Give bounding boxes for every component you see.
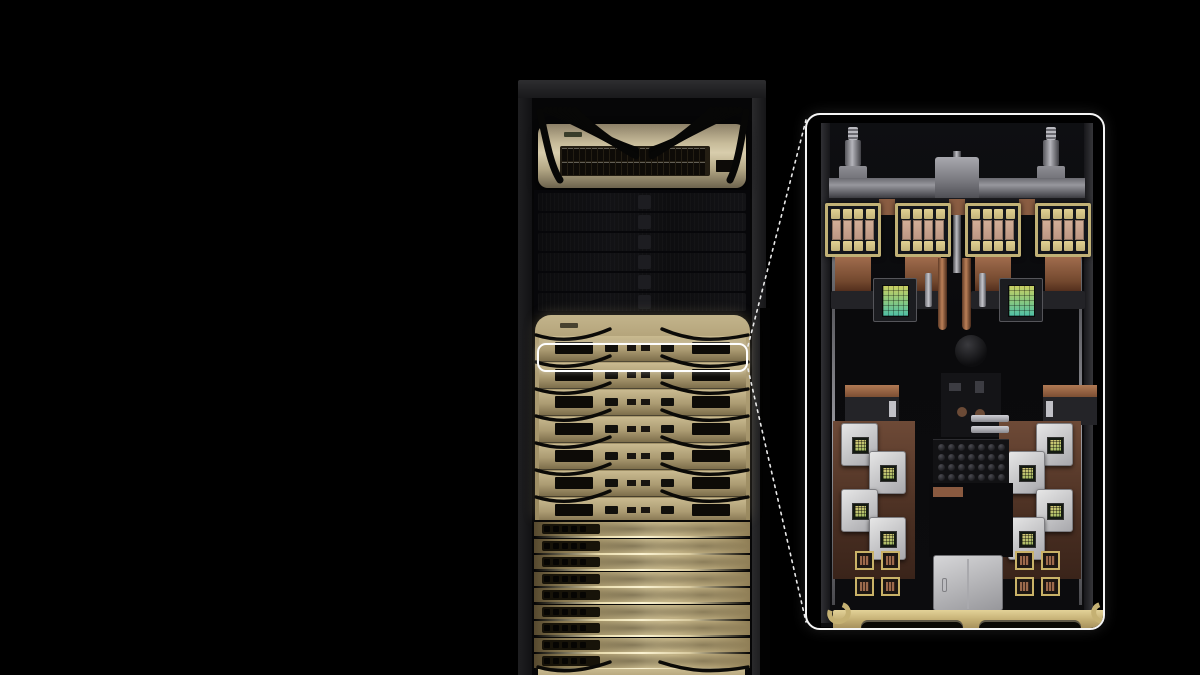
tray-connector (641, 507, 650, 513)
hbm-stack (1006, 241, 1015, 251)
blade-port-cluster (542, 623, 600, 633)
blade-port (544, 625, 550, 631)
tray-io-slot (555, 504, 593, 516)
switch-port (586, 162, 591, 175)
blade-port (562, 625, 568, 631)
blade-port-cluster (542, 640, 600, 650)
copper-strip (1043, 385, 1097, 397)
switch-port (592, 162, 597, 175)
capacitor (978, 444, 985, 451)
hbm-stack (924, 209, 933, 219)
copper-strip (845, 385, 899, 397)
switch-port (670, 162, 675, 175)
post-knurled-tip (848, 127, 858, 140)
cpu-module (999, 278, 1043, 322)
compute-tray-detail (821, 123, 1093, 627)
switch-port (676, 162, 681, 175)
tray-front-bar (833, 610, 1105, 630)
gpu-die (994, 220, 1003, 240)
cable-plug (605, 506, 618, 514)
switch-port (622, 162, 627, 175)
tray-connector (627, 480, 636, 486)
cable-plug (605, 479, 618, 487)
blade-port (553, 592, 559, 598)
network-switch (538, 124, 746, 188)
gpu-die (913, 220, 922, 240)
blade-port (553, 576, 559, 582)
tray-io-slot (555, 477, 593, 489)
switch-port (628, 148, 633, 161)
capacitor (988, 474, 995, 481)
switch-port (640, 148, 645, 161)
switch-port-grid (560, 146, 710, 176)
cable-plug (605, 452, 618, 460)
capacitor (988, 444, 995, 451)
tray-connector (627, 399, 636, 405)
tray-io-slot (692, 396, 730, 408)
blade-port (544, 658, 550, 664)
switch-port (574, 148, 579, 161)
switch-port (664, 148, 669, 161)
panel-clip (638, 295, 651, 309)
switch-port (658, 162, 663, 175)
copper-manifold-tab (949, 199, 965, 215)
tray-right-rail (1084, 123, 1093, 623)
blade-port (553, 543, 559, 549)
gpu-die (1053, 220, 1062, 240)
hbm-stack (983, 241, 992, 251)
blade-port (571, 609, 577, 615)
panel-clip (638, 195, 651, 209)
rack-left-pillar (518, 98, 532, 675)
capacitor (958, 454, 965, 461)
hbm-row (831, 241, 875, 251)
retention-clip (979, 273, 986, 307)
nvlink-blade-row (534, 588, 750, 602)
hbm-row (831, 209, 875, 219)
blank-panel (538, 253, 746, 271)
gpu-die (902, 220, 911, 240)
switch-port (646, 148, 651, 161)
ssd-drive (933, 555, 1003, 611)
capacitor (948, 474, 955, 481)
cable-plug (661, 452, 674, 460)
drive-latch (971, 415, 1009, 422)
handle-cutout (861, 620, 963, 630)
rack-top-cap (518, 80, 766, 98)
blade-port (580, 592, 586, 598)
post-knurled-tip (1046, 127, 1056, 140)
switch-port (592, 148, 597, 161)
capacitor (978, 464, 985, 471)
switch-port (574, 162, 579, 175)
hbm-stack (913, 209, 922, 219)
bga-chip (881, 577, 900, 596)
gpu-die (832, 220, 841, 240)
drive-latch (971, 426, 1009, 433)
magnified-tray-callout (805, 113, 1105, 630)
capacitor (938, 444, 945, 451)
blade-port-cluster (542, 557, 600, 567)
cpu-die (1008, 285, 1035, 317)
cable-plug (605, 398, 618, 406)
switch-port (610, 148, 615, 161)
gpu-die (972, 220, 981, 240)
gpu-package (965, 203, 1021, 257)
hbm-stack (831, 209, 840, 219)
compute-tray-row (539, 417, 746, 442)
blade-port (571, 526, 577, 532)
blade-port (580, 543, 586, 549)
switch-port (634, 162, 639, 175)
capacitor (958, 474, 965, 481)
gpu-package (895, 203, 951, 257)
tray-io-slot (692, 477, 730, 489)
blade-port (580, 526, 586, 532)
nvidia-logo-mark (560, 323, 578, 328)
hbm-stack (866, 241, 875, 251)
panel-clip (638, 255, 651, 269)
hbm-stack (983, 209, 992, 219)
switch-port (682, 162, 687, 175)
nic-chip (1019, 531, 1036, 548)
hbm-stack (1064, 209, 1073, 219)
switch-port (634, 148, 639, 161)
bga-chip (1015, 577, 1034, 596)
switch-port (622, 148, 627, 161)
hbm-row (1041, 209, 1085, 219)
retention-clip (925, 273, 932, 307)
blade-port (553, 642, 559, 648)
gpu-mount-bracket (1041, 291, 1085, 309)
hbm-stack (901, 209, 910, 219)
nic-chip (880, 531, 897, 548)
switch-port (568, 162, 573, 175)
ssd-slot (942, 578, 947, 592)
blade-port-cluster (542, 590, 600, 600)
capacitor (938, 464, 945, 471)
gpu-coldplate-copper (835, 257, 871, 291)
gpu-package (825, 203, 881, 257)
gpu-die (1064, 220, 1073, 240)
smd-component (949, 383, 961, 391)
midplane-bracket (1043, 385, 1097, 425)
blade-port (544, 642, 550, 648)
cable-plug (661, 425, 674, 433)
blade-port (562, 543, 568, 549)
cpu-die (882, 285, 909, 317)
silver-clip (889, 401, 896, 417)
blade-port (562, 642, 568, 648)
gpu-die-row (901, 220, 945, 240)
blank-panel (538, 213, 746, 231)
switch-port (616, 162, 621, 175)
switch-port (688, 162, 693, 175)
gpu-package (1035, 203, 1091, 257)
switch-port (628, 162, 633, 175)
cable-plug (661, 479, 674, 487)
blade-port (562, 658, 568, 664)
gpu-mount-bracket (831, 291, 875, 309)
cable-plug (605, 425, 618, 433)
switch-port (676, 148, 681, 161)
cable-plug (661, 371, 674, 379)
compute-tray-row (539, 390, 746, 415)
copper-coolant-pipe (938, 258, 947, 330)
switch-port (562, 162, 567, 175)
panel-clip (638, 235, 651, 249)
scene (0, 0, 1200, 675)
blade-port (571, 592, 577, 598)
switch-port (616, 148, 621, 161)
nic-chip (852, 437, 869, 454)
tray-connector (627, 426, 636, 432)
copper-manifold-tab (879, 199, 895, 215)
copper-coolant-pipe (962, 258, 971, 330)
capacitor (938, 454, 945, 461)
blade-port-cluster (542, 524, 600, 534)
capacitor (988, 454, 995, 461)
smd-component (975, 381, 984, 393)
capacitor (948, 444, 955, 451)
blade-port (553, 625, 559, 631)
blade-port-cluster (542, 656, 600, 666)
hbm-stack (843, 241, 852, 251)
nic-chip (852, 503, 869, 520)
blade-port (562, 526, 568, 532)
nic-chip (1047, 437, 1064, 454)
nvlink-blade-row (534, 539, 750, 553)
blade-port (571, 559, 577, 565)
hbm-stack (854, 209, 863, 219)
blade-port (544, 609, 550, 615)
hbm-stack (1076, 241, 1085, 251)
ssd-seam (967, 559, 969, 609)
hbm-stack (1064, 241, 1073, 251)
cable-plug (661, 506, 674, 514)
compute-tray-row (539, 444, 746, 469)
nvlink-blade-row (534, 572, 750, 586)
bga-chip (1041, 577, 1060, 596)
capacitor (968, 474, 975, 481)
tray-connector (627, 507, 636, 513)
hbm-stack (1041, 241, 1050, 251)
compute-tray-row (539, 471, 746, 496)
post-shaft (845, 140, 861, 166)
blade-port (553, 609, 559, 615)
switch-port (694, 162, 699, 175)
switch-port (700, 162, 705, 175)
capacitor (968, 464, 975, 471)
hbm-stack (1076, 209, 1085, 219)
switch-port (646, 162, 651, 175)
hbm-stack (831, 241, 840, 251)
tray-highlight-outline (537, 343, 748, 372)
gpu-die (983, 220, 992, 240)
cable-plug (605, 371, 618, 379)
blade-port-cluster (542, 574, 600, 584)
blade-port (544, 526, 550, 532)
nic-chip (1019, 465, 1036, 482)
cpu-module (873, 278, 917, 322)
switch-port (598, 162, 603, 175)
nvlink-blade-row (534, 621, 750, 635)
switch-port (586, 148, 591, 161)
panel-clip (638, 215, 651, 229)
hbm-stack (994, 209, 1003, 219)
coolant-pump (955, 335, 987, 367)
rack-body (518, 98, 766, 675)
blade-port-cluster (542, 607, 600, 617)
gpu-die (935, 220, 944, 240)
server-rack (518, 80, 766, 675)
hbm-stack (843, 209, 852, 219)
tray-connector (641, 480, 650, 486)
gpu-die (865, 220, 874, 240)
switch-port (580, 162, 585, 175)
blade-port (544, 592, 550, 598)
blank-panel (538, 193, 746, 211)
gpu-die-row (831, 220, 875, 240)
gpu-die (1075, 220, 1084, 240)
capacitor (998, 454, 1005, 461)
hbm-stack (854, 241, 863, 251)
blade-port (571, 642, 577, 648)
switch-uplink-ports (716, 160, 734, 172)
capacitor (968, 444, 975, 451)
switch-port (598, 148, 603, 161)
gpu-die (843, 220, 852, 240)
bottom-compute-tray (538, 669, 745, 675)
blade-port (562, 576, 568, 582)
blade-port (571, 658, 577, 664)
switch-port (700, 148, 705, 161)
blank-panel (538, 293, 746, 311)
copper-manifold-tab (1019, 199, 1035, 215)
switch-port (640, 162, 645, 175)
capacitor (948, 464, 955, 471)
nvlink-blade-row (534, 605, 750, 619)
tray-connector (627, 453, 636, 459)
bga-chip (881, 551, 900, 570)
capacitor (958, 464, 965, 471)
tray-io-slot (692, 423, 730, 435)
tray-io-slot (555, 396, 593, 408)
bga-chip (855, 551, 874, 570)
tray-io-slot (692, 450, 730, 462)
tray-connector (641, 399, 650, 405)
capacitor (998, 444, 1005, 451)
blade-port (580, 609, 586, 615)
blade-port (562, 592, 568, 598)
blade-port (580, 559, 586, 565)
switch-port (604, 162, 609, 175)
blade-port (544, 559, 550, 565)
hbm-stack (936, 241, 945, 251)
switch-port (682, 148, 687, 161)
blade-port (544, 543, 550, 549)
rail-center-bracket (935, 157, 979, 198)
capacitor (978, 474, 985, 481)
capacitor-board (933, 439, 1009, 485)
hbm-stack (866, 209, 875, 219)
handle-cutout (979, 620, 1081, 630)
gpu-die (1042, 220, 1051, 240)
blade-port (571, 576, 577, 582)
capacitor (958, 444, 965, 451)
switch-port (688, 148, 693, 161)
blade-port (553, 658, 559, 664)
bga-chip (1041, 551, 1060, 570)
drive-bay (929, 483, 1013, 557)
blank-panel-section (534, 190, 750, 315)
hbm-stack (936, 209, 945, 219)
nic-chip (880, 465, 897, 482)
gpu-coldplate-copper (1045, 257, 1081, 291)
silver-clip (1046, 401, 1053, 417)
panel-clip (638, 275, 651, 289)
post-shaft (1043, 140, 1059, 166)
smd-component (957, 407, 967, 417)
blank-panel (538, 273, 746, 291)
nvlink-blade-row (534, 555, 750, 569)
gpu-die-row (1041, 220, 1085, 240)
switch-port (652, 162, 657, 175)
switch-port (610, 162, 615, 175)
blade-port (571, 543, 577, 549)
blade-port (562, 559, 568, 565)
switch-port (664, 162, 669, 175)
tray-io-slot (555, 450, 593, 462)
switch-port (562, 148, 567, 161)
capacitor (978, 454, 985, 461)
switch-port (604, 148, 609, 161)
blade-port (580, 642, 586, 648)
switch-port (652, 148, 657, 161)
bga-chip (855, 577, 874, 596)
capacitor (948, 454, 955, 461)
capacitor (998, 464, 1005, 471)
gpu-die (854, 220, 863, 240)
tray-io-slot (555, 423, 593, 435)
switch-port (670, 148, 675, 161)
switch-port (568, 148, 573, 161)
switch-port (580, 148, 585, 161)
hbm-stack (1053, 241, 1062, 251)
nvidia-logo-mark (564, 132, 582, 137)
blade-port (562, 609, 568, 615)
hbm-stack (924, 241, 933, 251)
hbm-row (901, 241, 945, 251)
capacitor (988, 464, 995, 471)
hbm-stack (901, 241, 910, 251)
tray-connector (641, 372, 650, 378)
nic-module (869, 451, 906, 494)
nvlink-blade-section (534, 520, 750, 669)
hbm-stack (971, 209, 980, 219)
cable-plug (661, 398, 674, 406)
hbm-row (901, 209, 945, 219)
hbm-row (971, 241, 1015, 251)
hbm-row (971, 209, 1015, 219)
nvlink-blade-row (534, 654, 750, 668)
tray-connector (627, 372, 636, 378)
hbm-stack (971, 241, 980, 251)
nvlink-blade-row (534, 638, 750, 652)
hbm-row (1041, 241, 1085, 251)
rack-side-cable-channel (760, 308, 770, 675)
tray-connector (641, 426, 650, 432)
